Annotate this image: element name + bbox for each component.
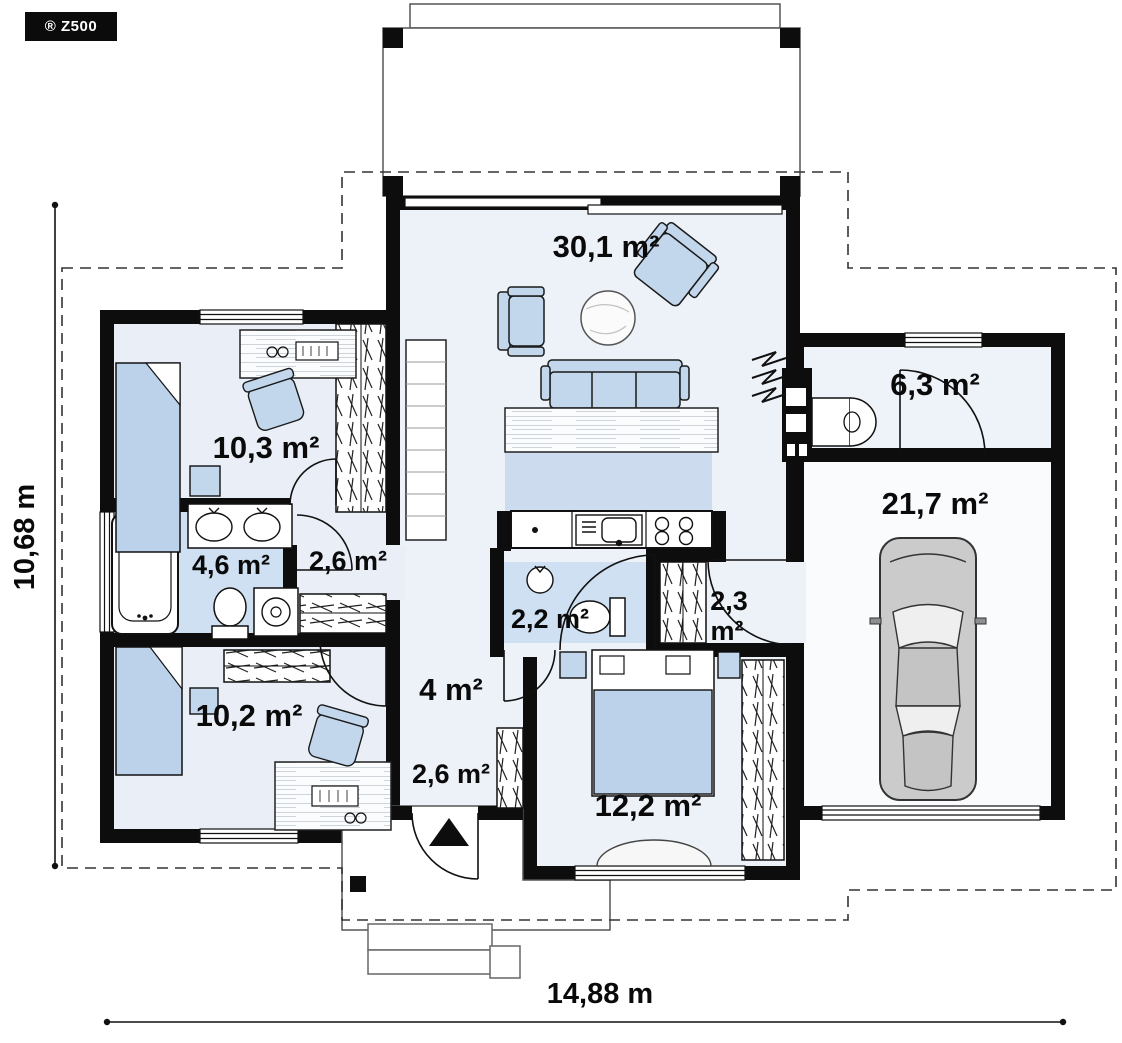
bedroom-left-area-label: 10,2 m² xyxy=(196,698,303,733)
floor-plan-drawing: 30,1 m² 10,3 m² 4,6 m² 2,6 m² 2,2 m² 2,3… xyxy=(0,0,1122,1043)
brand-badge: ® Z500 xyxy=(25,12,117,41)
window-bedroom-bottom xyxy=(575,866,745,880)
terrace-post xyxy=(780,28,800,48)
entrance-step xyxy=(490,946,520,978)
terrace-post xyxy=(383,28,403,48)
shelving-unit xyxy=(406,340,446,540)
desk xyxy=(275,762,391,830)
car-mirror xyxy=(870,618,881,624)
entrance-step xyxy=(368,924,492,950)
terrace-post xyxy=(780,176,800,196)
height-dimension: 10,68 m xyxy=(9,202,58,869)
keyboard xyxy=(296,342,338,360)
nightstand xyxy=(190,466,220,496)
hallway-area-label: 2,6 m² xyxy=(309,546,387,576)
kitchen-counter xyxy=(511,511,712,548)
entrance-step xyxy=(368,950,492,974)
width-dimension: 14,88 m xyxy=(104,978,1066,1025)
passage-gap xyxy=(384,545,406,600)
wardrobe-bedroom-bottom xyxy=(742,660,784,860)
kitchen-sink xyxy=(576,515,642,546)
window-bedroom-left xyxy=(200,829,298,843)
wardrobe-entry xyxy=(497,728,523,808)
bedroom-top-area-label: 10,3 m² xyxy=(213,430,320,465)
wardrobe-hallway xyxy=(300,594,386,633)
window-bedroom-top xyxy=(200,310,303,324)
garage-gate xyxy=(822,806,1040,820)
nightstand xyxy=(560,652,586,678)
toilet xyxy=(212,588,248,639)
desk xyxy=(240,330,356,378)
sofa xyxy=(541,360,689,408)
nightstand xyxy=(718,652,740,678)
garage-area-label: 21,7 m² xyxy=(882,486,989,521)
porch-post xyxy=(350,876,366,892)
car-mirror xyxy=(975,618,986,624)
boiler xyxy=(812,398,876,446)
round-rug xyxy=(581,291,635,345)
terrace xyxy=(383,4,800,196)
wardrobe-bedroom-left xyxy=(224,650,330,682)
width-dimension-label: 14,88 m xyxy=(547,978,653,1010)
wardrobe-area-unit: m² xyxy=(711,616,744,646)
car-top-view-icon xyxy=(870,538,986,800)
armchair xyxy=(498,287,544,356)
terrace-post xyxy=(383,176,403,196)
pillow xyxy=(600,656,624,674)
utility-area-label: 6,3 m² xyxy=(890,367,980,402)
garage-door-gap xyxy=(784,562,806,643)
bathroom-area-label: 4,6 m² xyxy=(192,550,270,580)
blanket xyxy=(594,690,712,794)
wardrobe-small xyxy=(660,562,706,643)
hall-area-label: 4 m² xyxy=(419,672,483,707)
bedroom-bottom-area-label: 12,2 m² xyxy=(595,788,702,823)
brand-badge-label: ® Z500 xyxy=(45,18,97,35)
height-dimension-label: 10,68 m xyxy=(9,484,41,590)
kitchen-floor xyxy=(505,452,712,511)
double-bed xyxy=(592,650,714,796)
double-washbasin xyxy=(188,504,292,548)
floor-plan-page: 30,1 m² 10,3 m² 4,6 m² 2,6 m² 2,2 m² 2,3… xyxy=(0,0,1122,1043)
dining-table xyxy=(505,408,718,452)
wardrobe-area-value: 2,3 xyxy=(710,586,748,616)
single-bed xyxy=(116,363,180,552)
keyboard xyxy=(312,786,358,806)
entry-area-label: 2,6 m² xyxy=(412,759,490,789)
corner-sink xyxy=(527,566,553,593)
window-garage xyxy=(905,333,982,347)
washing-machine xyxy=(254,588,298,636)
living-area-label: 30,1 m² xyxy=(553,229,660,264)
single-bed xyxy=(116,647,182,775)
pillow xyxy=(666,656,690,674)
wc-area-label: 2,2 m² xyxy=(511,604,589,634)
